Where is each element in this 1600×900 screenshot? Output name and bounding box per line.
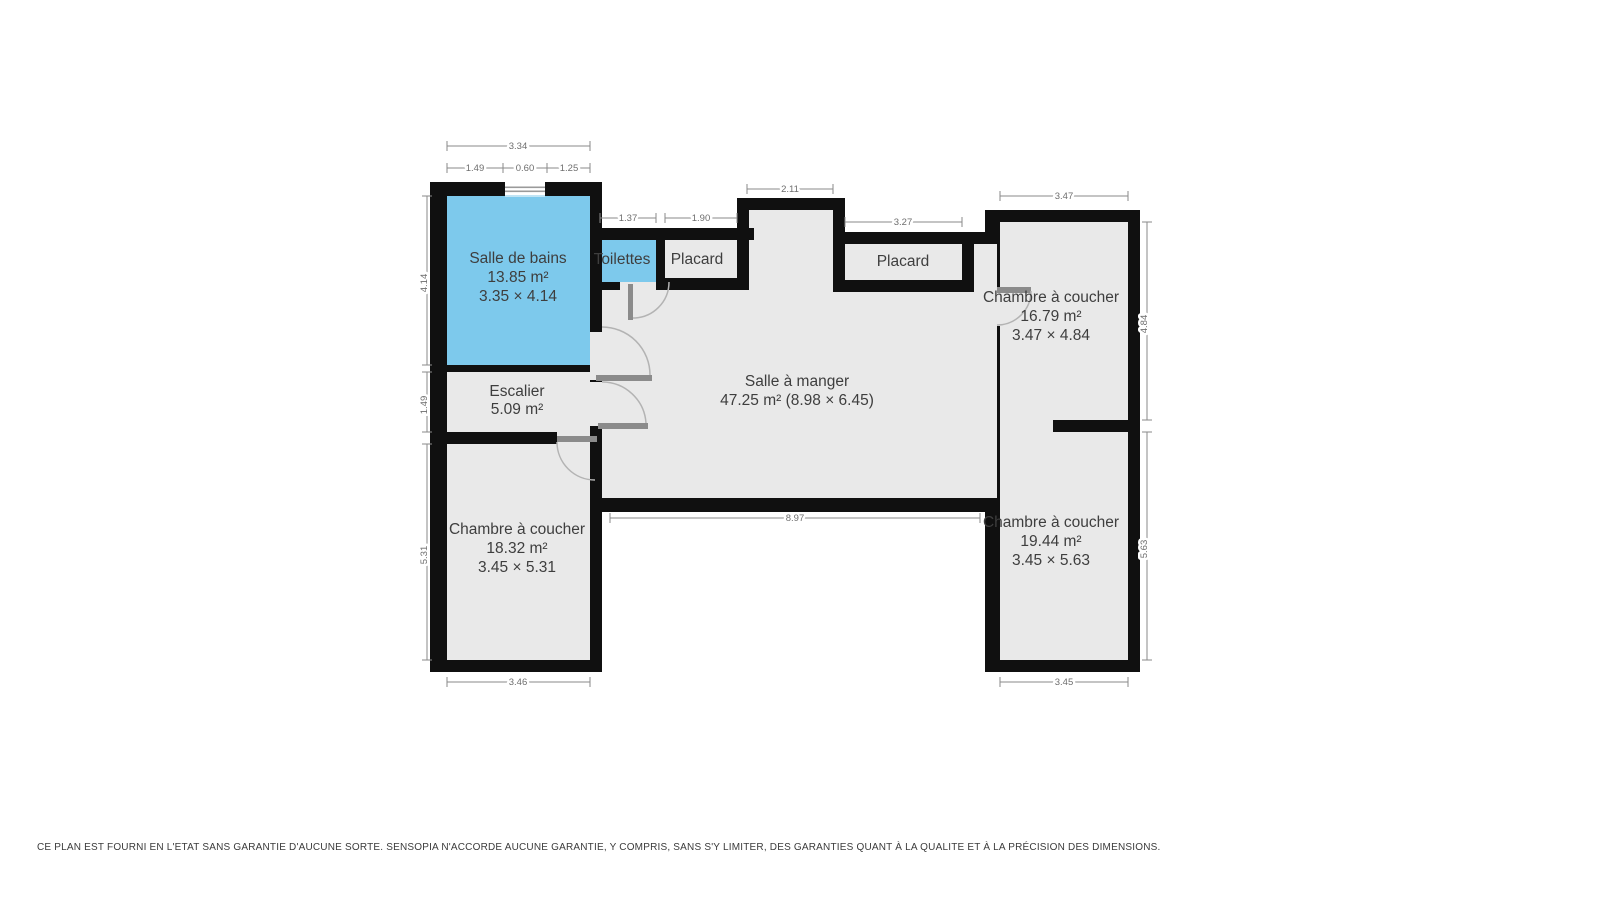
bedroom-tr-label: Chambre à coucher — [983, 289, 1119, 306]
stairs-area: 5.09 m² — [491, 401, 544, 418]
bathroom-door-leaf — [596, 375, 652, 381]
room-dining-recess-floor — [749, 210, 833, 244]
dim-toilet-width: 1.37 — [619, 213, 638, 224]
dim-recess-width: 2.11 — [781, 184, 799, 195]
bedroom-br-size: 3.45 × 5.63 — [1012, 552, 1090, 569]
floor-plan: Salle de bains 13.85 m² 3.35 × 4.14 Toil… — [0, 0, 1600, 900]
dim-bedroom-tr-width: 3.47 — [1055, 191, 1074, 202]
closet2-label: Placard — [877, 253, 930, 270]
bedroom-bl-area: 18.32 m² — [486, 540, 547, 557]
bedroom-bl-door-leaf — [557, 436, 597, 442]
toilet-label: Toilettes — [594, 251, 651, 268]
bedroom-bl-size: 3.45 × 5.31 — [478, 559, 556, 576]
closet1-label: Placard — [671, 251, 724, 268]
dining-label: Salle à manger — [745, 373, 849, 390]
stairs-door-leaf — [598, 423, 648, 429]
toilet-door-leaf — [628, 284, 633, 320]
dim-bedroom-br-width: 3.45 — [1055, 677, 1074, 688]
dim-bath-height: 4.14 — [419, 274, 430, 293]
dining-area: 47.25 m² (8.98 × 6.45) — [720, 392, 874, 409]
bedroom-br-label: Chambre à coucher — [983, 514, 1119, 531]
window — [505, 182, 545, 197]
dim-bath-total-width: 3.34 — [509, 141, 528, 152]
bathroom-size: 3.35 × 4.14 — [479, 288, 557, 305]
bedroom-bl-label: Chambre à coucher — [449, 521, 585, 538]
dim-bedroom-bl-height: 5.31 — [419, 546, 430, 565]
dim-closet1-width: 1.90 — [692, 213, 711, 224]
stairs-label: Escalier — [489, 383, 544, 400]
disclaimer-text: CE PLAN EST FOURNI EN L'ETAT SANS GARANT… — [37, 842, 1160, 853]
dim-bath-window: 0.60 — [516, 163, 535, 174]
dim-bedroom-tr-height: 4.84 — [1139, 315, 1150, 334]
bedroom-br-area: 19.44 m² — [1020, 533, 1081, 550]
dim-stairs-height: 1.49 — [419, 396, 430, 415]
floor-plan-page: Salle de bains 13.85 m² 3.35 × 4.14 Toil… — [0, 0, 1600, 900]
dim-bath-seg-left: 1.49 — [466, 163, 485, 174]
dim-dining-width: 8.97 — [786, 513, 805, 524]
bedroom-tr-area: 16.79 m² — [1020, 308, 1081, 325]
dim-bedroom-br-height: 5.63 — [1139, 540, 1150, 559]
bathroom-area: 13.85 m² — [487, 269, 548, 286]
bathroom-label: Salle de bains — [469, 250, 567, 267]
dim-closet2-width: 3.27 — [894, 217, 913, 228]
bedroom-tr-size: 3.47 × 4.84 — [1012, 327, 1090, 344]
dim-bath-seg-right: 1.25 — [560, 163, 579, 174]
dim-bedroom-bl-width: 3.46 — [509, 677, 528, 688]
